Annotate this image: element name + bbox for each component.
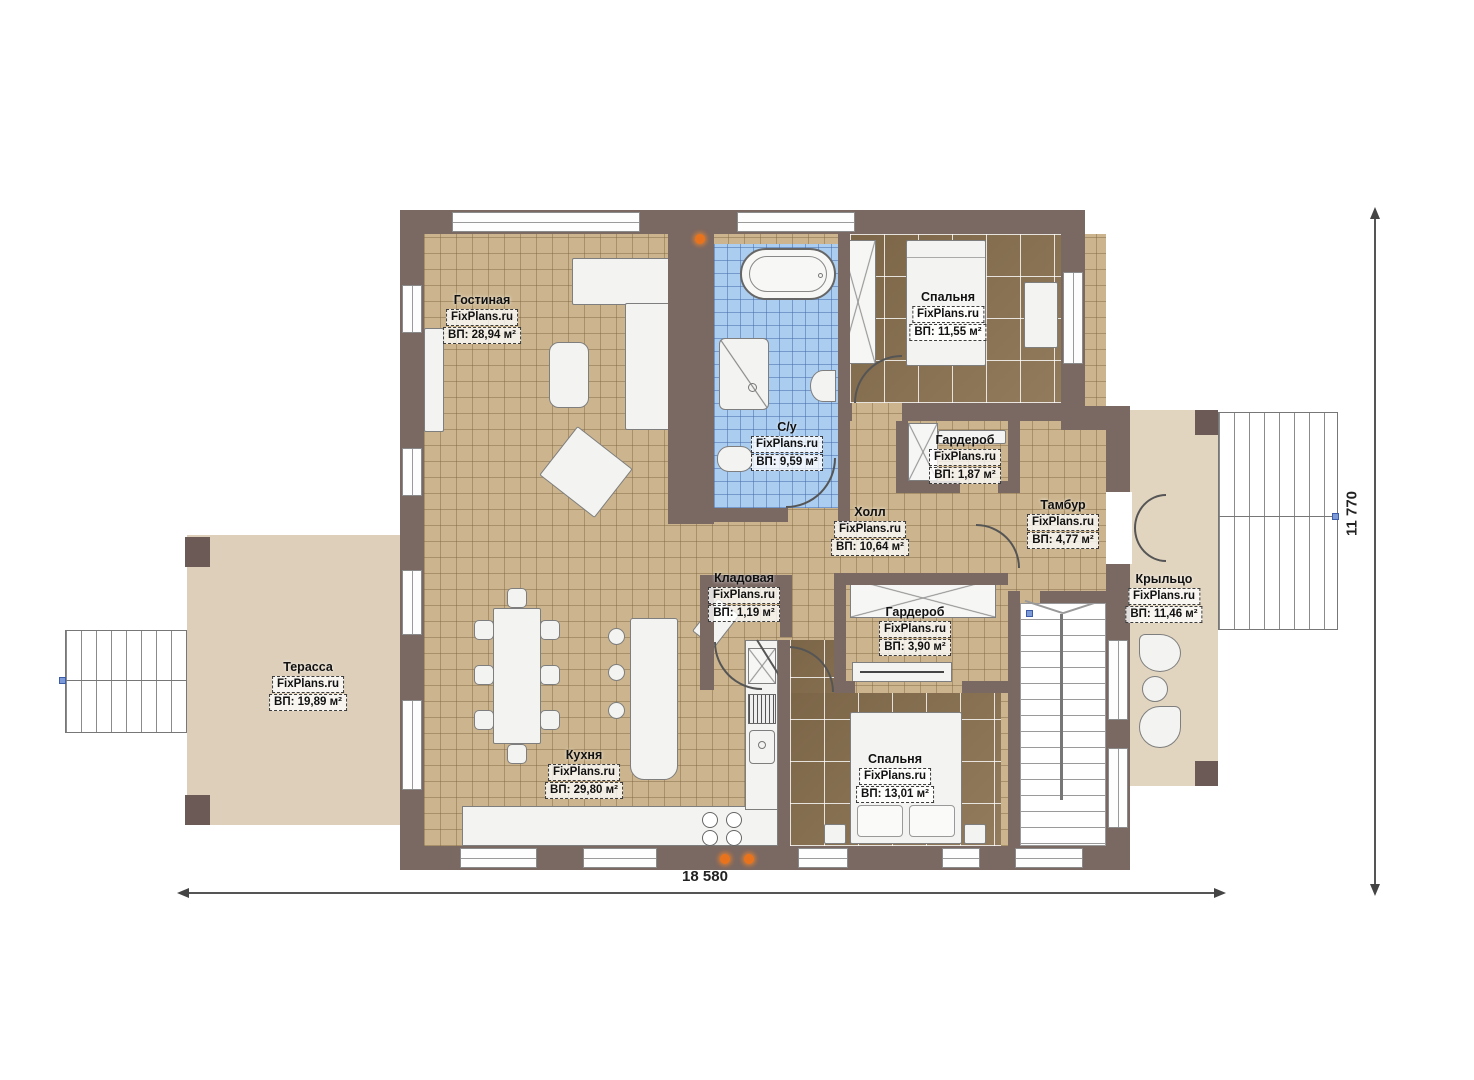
bar-stool — [608, 628, 625, 645]
nightstand — [824, 824, 846, 844]
dresser — [1024, 282, 1058, 348]
room-name: Гостиная — [443, 293, 521, 307]
window — [402, 570, 422, 635]
terrace-post — [185, 537, 210, 567]
stove-burner — [726, 830, 742, 846]
bar-stool — [608, 664, 625, 681]
window — [1015, 848, 1083, 868]
brand-label: FixPlans.ru — [272, 676, 344, 693]
room-area: ВП: 19,89 м² — [269, 694, 347, 711]
brand-label: FixPlans.ru — [548, 764, 620, 781]
bathtub — [740, 248, 836, 300]
dimension-arrow — [1370, 207, 1380, 219]
nightstand — [964, 824, 986, 844]
brand-label: FixPlans.ru — [859, 768, 931, 785]
porch-steps — [1218, 412, 1338, 630]
room-label-kitchen: Кухня FixPlans.ru ВП: 29,80 м² — [545, 748, 623, 799]
window — [1108, 640, 1128, 720]
staircase-treads — [1021, 616, 1105, 844]
bed-blanket-line — [907, 257, 985, 258]
room-area: ВП: 11,46 м² — [1125, 606, 1202, 623]
room-label-living: Гостиная FixPlans.ru ВП: 28,94 м² — [443, 293, 521, 344]
dining-chair — [540, 665, 560, 685]
room-label-bedroom2: Спальня FixPlans.ru ВП: 13,01 м² — [856, 752, 934, 803]
brand-label: FixPlans.ru — [929, 449, 1001, 466]
room-area: ВП: 1,19 м² — [708, 605, 780, 622]
staircase-rail — [1060, 614, 1063, 800]
brand-label: FixPlans.ru — [446, 309, 518, 326]
dimension-width-label: 18 580 — [640, 868, 770, 885]
room-area: ВП: 29,80 м² — [545, 782, 623, 799]
wall — [1040, 591, 1106, 603]
room-area: ВП: 4,77 м² — [1027, 532, 1099, 549]
wall — [778, 640, 790, 846]
room-name: Терасса — [269, 660, 347, 674]
wall — [962, 681, 1008, 693]
dining-chair — [474, 665, 494, 685]
room-area: ВП: 1,87 м² — [929, 467, 1001, 484]
wall — [668, 234, 714, 524]
room-name: Тамбур — [1027, 498, 1099, 512]
window — [1108, 748, 1128, 828]
porch-chair — [1139, 634, 1181, 672]
shower-drain — [748, 383, 757, 392]
room-area: ВП: 10,64 м² — [831, 539, 909, 556]
room-label-bathroom: С/у FixPlans.ru ВП: 9,59 м² — [751, 420, 823, 471]
dining-chair — [540, 620, 560, 640]
window — [402, 700, 422, 790]
brand-label: FixPlans.ru — [912, 306, 984, 323]
room-label-terrace: Терасса FixPlans.ru ВП: 19,89 м² — [269, 660, 347, 711]
stove-burner — [726, 812, 742, 828]
dining-chair — [474, 710, 494, 730]
dimension-arrow — [1214, 888, 1226, 898]
sofa — [572, 258, 680, 305]
dining-table — [493, 608, 541, 744]
dining-chair — [474, 620, 494, 640]
dimension-line-width — [185, 892, 1222, 894]
room-label-hall: Холл FixPlans.ru ВП: 10,64 м² — [831, 505, 909, 556]
brand-label: FixPlans.ru — [751, 436, 823, 453]
porch-post — [1195, 410, 1218, 435]
room-name: С/у — [751, 420, 823, 434]
terrace-steps-direction-line — [65, 680, 187, 681]
dining-chair — [507, 744, 527, 764]
window — [798, 848, 848, 868]
sliding-door-track — [860, 671, 944, 673]
brand-label: FixPlans.ru — [1027, 514, 1099, 531]
porch-steps-direction-line — [1218, 516, 1336, 517]
dimension-arrow — [177, 888, 189, 898]
room-label-wardrobe2: Гардероб FixPlans.ru ВП: 3,90 м² — [879, 605, 951, 656]
wall — [714, 508, 788, 522]
kitchen-sink — [749, 730, 775, 764]
terrace-steps — [65, 630, 187, 733]
porch-steps-marker — [1332, 513, 1339, 520]
wall — [838, 403, 852, 421]
stove-burner — [702, 812, 718, 828]
wall — [902, 403, 1061, 421]
wall — [834, 573, 846, 693]
room-name: Гардероб — [879, 605, 951, 619]
room-label-vestibule: Тамбур FixPlans.ru ВП: 4,77 м² — [1027, 498, 1099, 549]
dining-chair — [540, 710, 560, 730]
staircase-marker — [1026, 610, 1033, 617]
dimension-height-label: 11 770 — [1344, 469, 1361, 559]
brand-label: FixPlans.ru — [1128, 588, 1200, 605]
brand-label: FixPlans.ru — [834, 521, 906, 538]
window — [583, 848, 657, 868]
shower — [719, 338, 769, 410]
window — [1063, 272, 1083, 364]
coffee-table — [549, 342, 589, 408]
kitchen-sink-drain — [758, 741, 766, 749]
bathroom-sink — [810, 370, 836, 402]
room-name: Крыльцо — [1125, 572, 1202, 586]
room-name: Спальня — [909, 290, 986, 304]
fridge — [748, 694, 776, 724]
room-name: Холл — [831, 505, 909, 519]
room-name: Кухня — [545, 748, 623, 762]
wall — [834, 681, 855, 693]
bathtub-drain — [818, 273, 823, 278]
bar-stool — [608, 702, 625, 719]
room-area: ВП: 3,90 м² — [879, 639, 951, 656]
brand-label: FixPlans.ru — [879, 621, 951, 638]
room-name: Кладовая — [708, 571, 780, 585]
porch-chair — [1139, 706, 1181, 748]
brand-label: FixPlans.ru — [708, 587, 780, 604]
bed-pillow — [857, 805, 903, 837]
window — [737, 212, 855, 232]
room-area: ВП: 9,59 м² — [751, 454, 823, 471]
kitchen-island — [630, 618, 678, 780]
room-name: Спальня — [856, 752, 934, 766]
dimension-arrow — [1370, 884, 1380, 896]
room-label-porch: Крыльцо FixPlans.ru ВП: 11,46 м² — [1125, 572, 1202, 623]
utility-marker — [695, 234, 705, 244]
room-label-wardrobe1: Гардероб FixPlans.ru ВП: 1,87 м² — [929, 433, 1001, 484]
stove-burner — [702, 830, 718, 846]
room-area: ВП: 28,94 м² — [443, 327, 521, 344]
utility-marker — [744, 854, 754, 864]
window — [460, 848, 537, 868]
utility-marker — [720, 854, 730, 864]
terrace-steps-marker — [59, 677, 66, 684]
window — [402, 285, 422, 333]
window — [942, 848, 980, 868]
room-area: ВП: 13,01 м² — [856, 786, 934, 803]
dining-chair — [507, 588, 527, 608]
room-name: Гардероб — [929, 433, 1001, 447]
wall — [998, 481, 1020, 493]
window — [452, 212, 640, 232]
cabinet — [424, 328, 444, 432]
wall — [1008, 591, 1020, 846]
room-label-bedroom1: Спальня FixPlans.ru ВП: 11,55 м² — [909, 290, 986, 341]
wall — [834, 573, 1008, 585]
window — [402, 448, 422, 496]
bed-pillow — [909, 805, 955, 837]
toilet — [717, 446, 753, 472]
wall — [780, 587, 792, 637]
room-label-storage: Кладовая FixPlans.ru ВП: 1,19 м² — [708, 571, 780, 622]
floor-plan: Гостиная FixPlans.ru ВП: 28,94 м² Спальн… — [0, 0, 1474, 1080]
room-area: ВП: 11,55 м² — [909, 324, 986, 341]
bathtub-basin — [749, 256, 827, 292]
dimension-line-height — [1374, 215, 1376, 893]
wall — [838, 234, 850, 524]
porch-post — [1195, 761, 1218, 786]
porch-table — [1142, 676, 1168, 702]
entrance-door-opening — [1106, 492, 1132, 564]
terrace-post — [185, 795, 210, 825]
